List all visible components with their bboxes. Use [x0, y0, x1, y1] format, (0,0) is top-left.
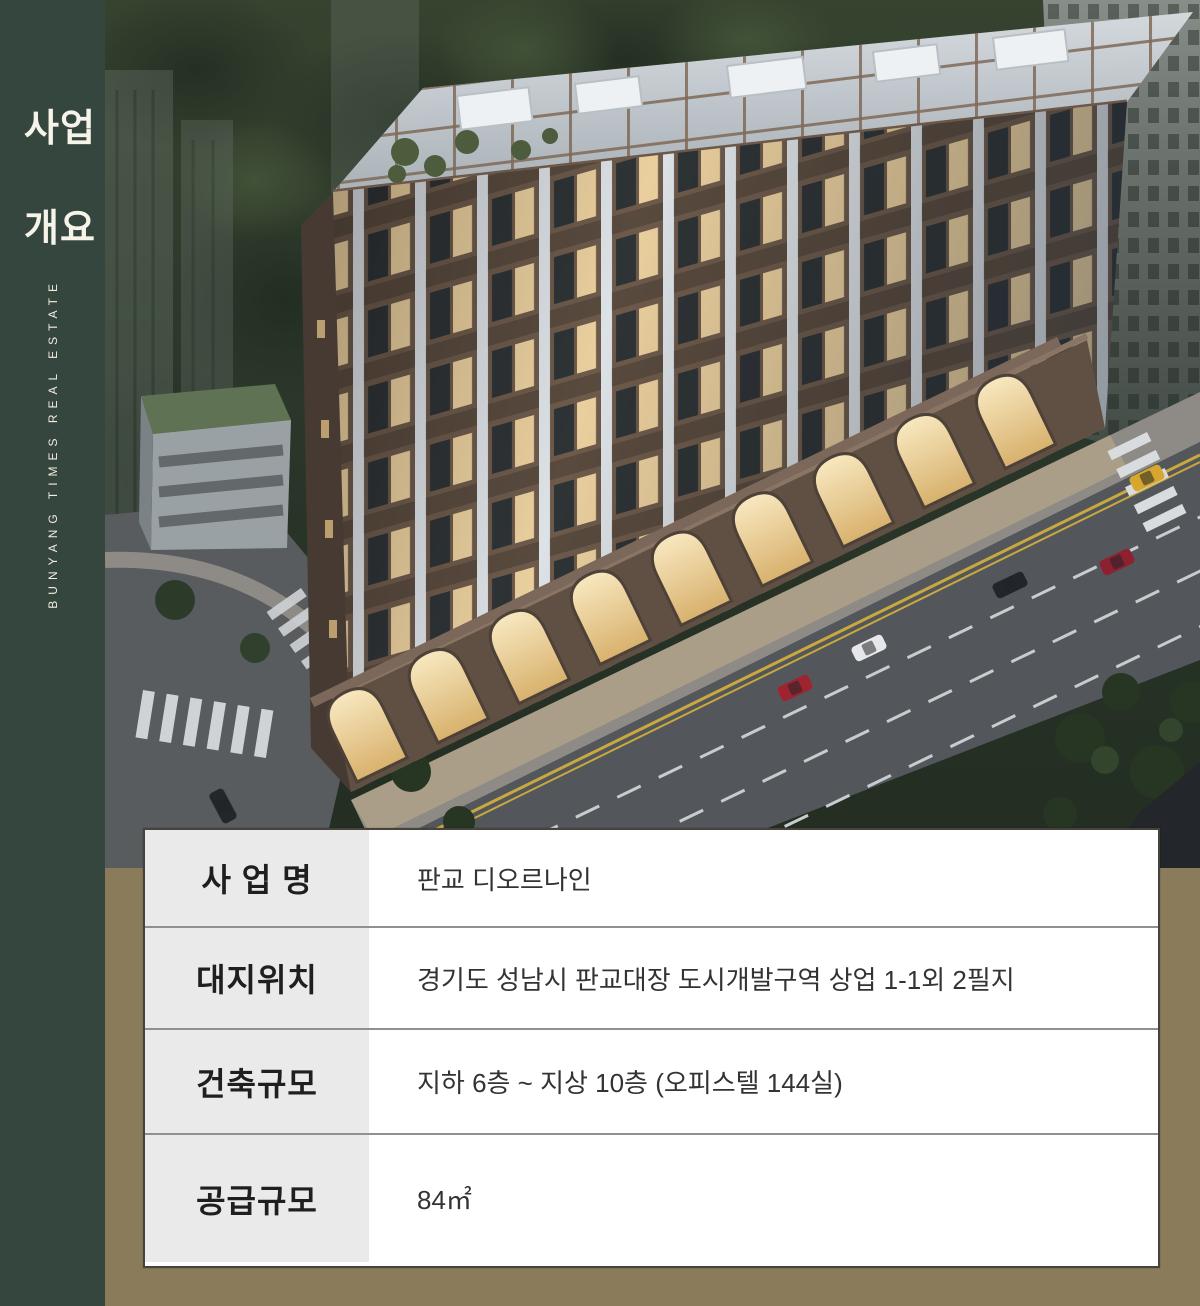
- row-value: 경기도 성남시 판교대장 도시개발구역 상업 1-1외 2필지: [369, 928, 1158, 1028]
- row-label: 대지위치: [145, 928, 369, 1028]
- row-value: 지하 6층 ~ 지상 10층 (오피스텔 144실): [369, 1030, 1158, 1133]
- row-label: 사 업 명: [145, 830, 369, 926]
- sidebar: 사업 개요 BUNYANG TIMES REAL ESTATE: [0, 0, 105, 1306]
- office-building-left: [139, 384, 291, 550]
- brand-vertical-text: BUNYANG TIMES REAL ESTATE: [46, 278, 60, 609]
- row-value: 판교 디오르나인: [369, 830, 1158, 926]
- page: 사업 개요 BUNYANG TIMES REAL ESTATE: [0, 0, 1200, 1306]
- row-value: 84㎡: [369, 1135, 1158, 1262]
- table-row: 대지위치 경기도 성남시 판교대장 도시개발구역 상업 1-1외 2필지: [145, 926, 1158, 1028]
- project-info-panel: 사 업 명 판교 디오르나인 대지위치 경기도 성남시 판교대장 도시개발구역 …: [143, 828, 1160, 1268]
- table-row: 공급규모 84㎡: [145, 1133, 1158, 1262]
- page-title-line2: 개요: [24, 208, 96, 250]
- table-row: 사 업 명 판교 디오르나인: [145, 830, 1158, 926]
- building-rendering: [105, 0, 1200, 868]
- page-title-line1: 사업: [24, 108, 96, 150]
- page-title: 사업 개요: [24, 104, 96, 254]
- building-rendering-svg: [105, 0, 1200, 868]
- row-label: 건축규모: [145, 1030, 369, 1133]
- row-label: 공급규모: [145, 1135, 369, 1262]
- brand-vertical-wrap: BUNYANG TIMES REAL ESTATE: [0, 278, 105, 608]
- table-row: 건축규모 지하 6층 ~ 지상 10층 (오피스텔 144실): [145, 1028, 1158, 1133]
